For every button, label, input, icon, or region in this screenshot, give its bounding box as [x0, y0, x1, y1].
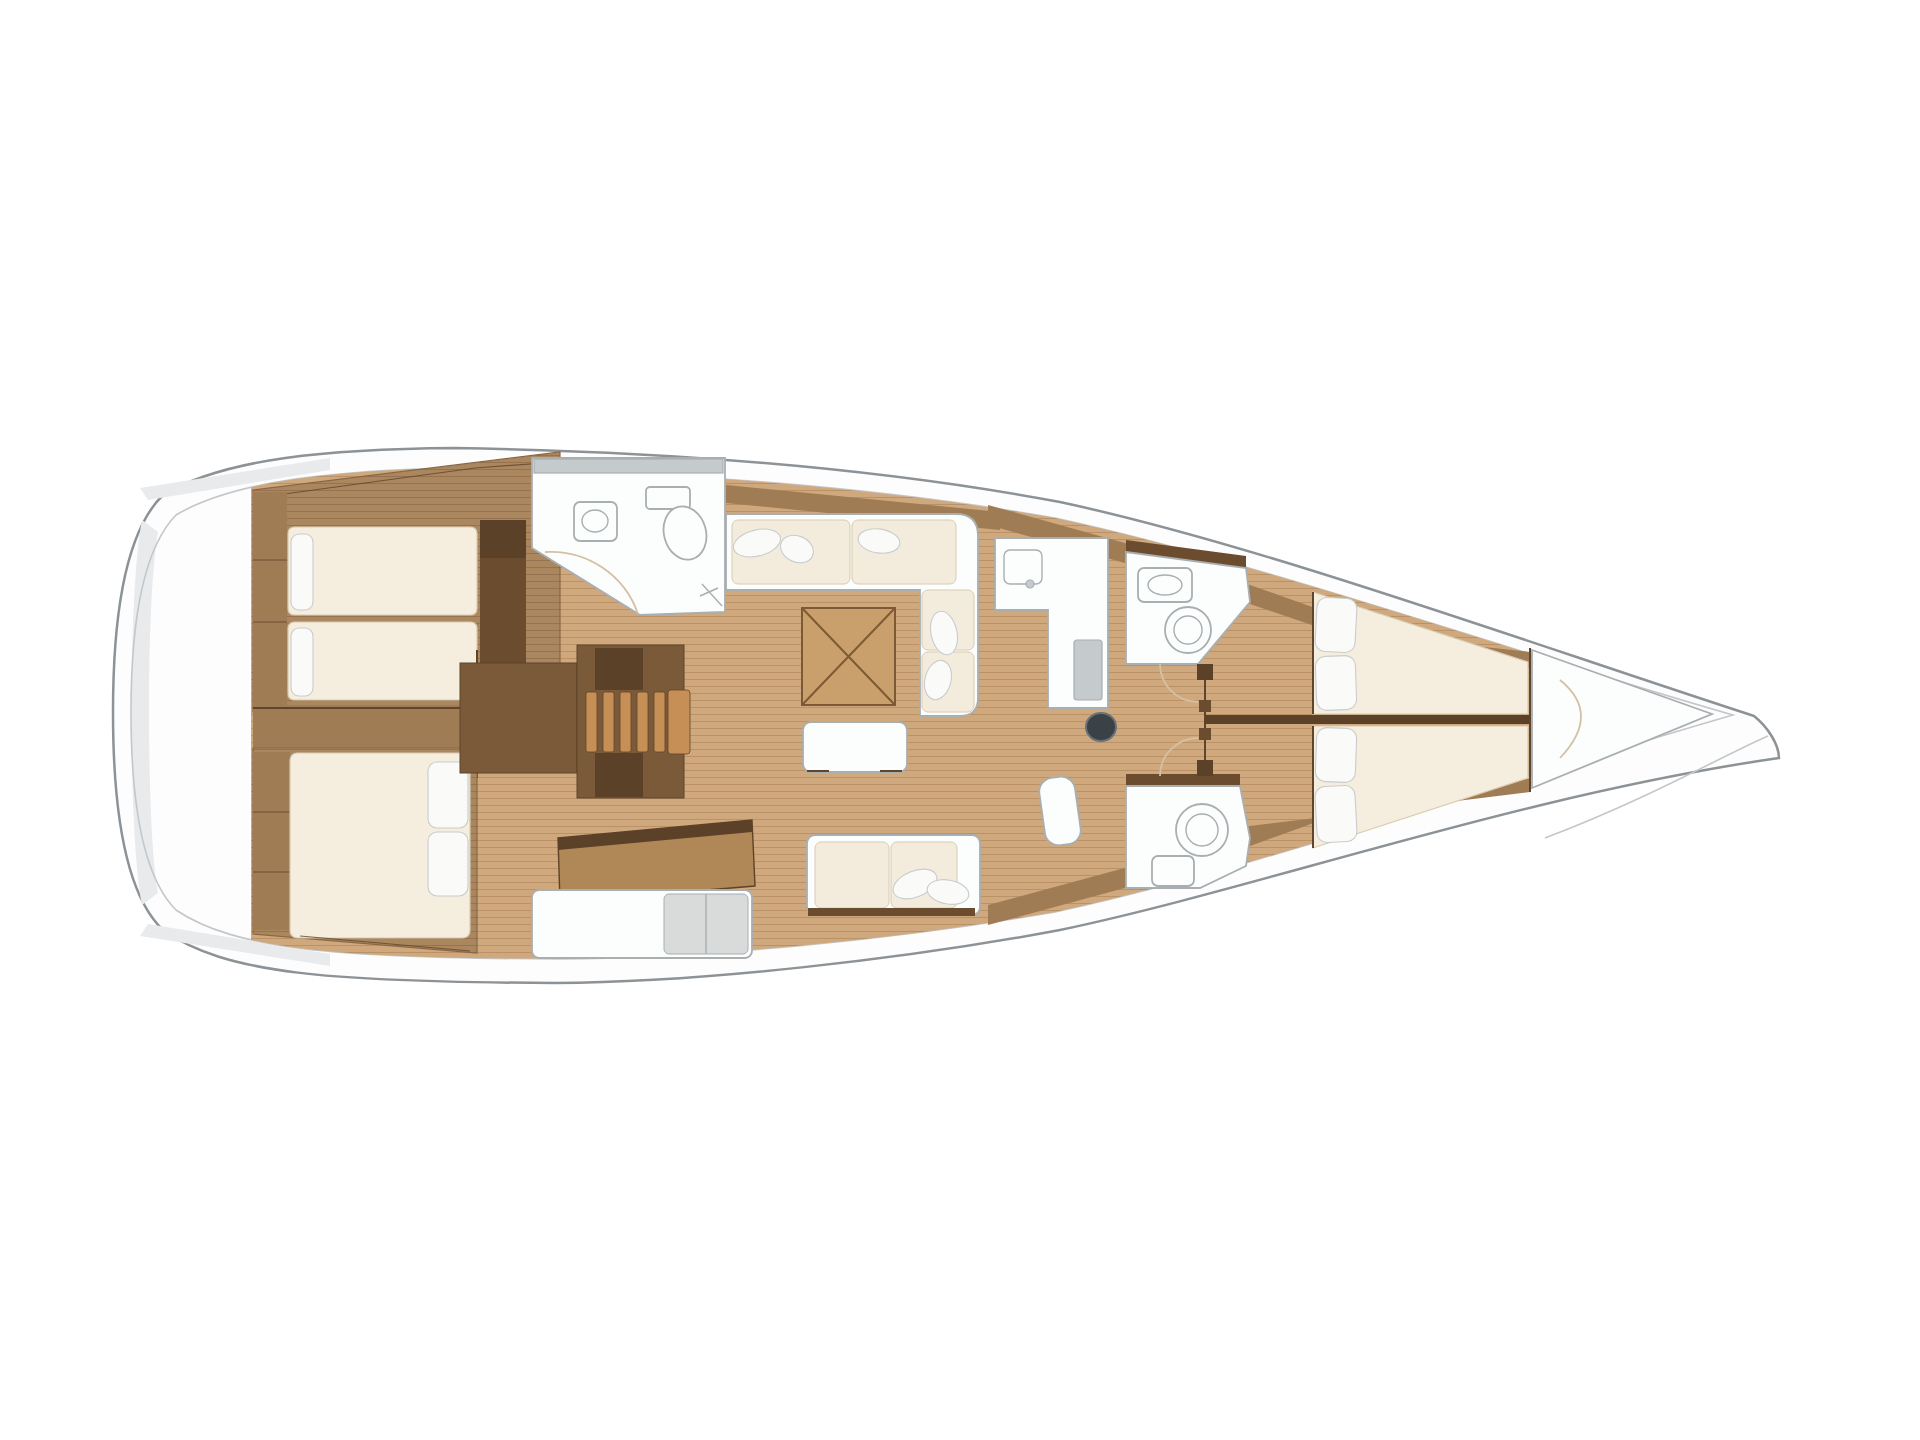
vberth-pillow-3	[1315, 727, 1357, 782]
forward-head-port-sink	[1138, 568, 1192, 602]
vberth-pillow-2	[1315, 655, 1357, 710]
floorplan-page	[0, 0, 1920, 1440]
aft-cabin-starboard-wardrobe	[253, 752, 290, 930]
vberth-center-divider	[1205, 715, 1530, 724]
vberth-pillow-4	[1315, 785, 1358, 843]
salon-bench	[803, 722, 907, 772]
mast	[1086, 713, 1116, 741]
forward-head-starboard-toilet	[1176, 804, 1228, 856]
stair-landing-tread	[668, 690, 690, 754]
stairs-rail-top	[595, 648, 643, 690]
aft-port-berth-1	[288, 527, 477, 615]
stair-tread-2	[603, 692, 614, 752]
forward-head-starboard-sink	[1152, 856, 1194, 886]
aft-head-cabinet	[534, 459, 723, 473]
aft-starboard-pillow-2	[428, 832, 468, 896]
stair-tread-1	[586, 692, 597, 752]
corridor-door-hinge-top	[1197, 664, 1213, 680]
forward-head-starboard-header	[1126, 774, 1240, 786]
aft-cabin-starboard	[253, 748, 477, 953]
stair-tread-3	[620, 692, 631, 752]
aft-port-pillow-1	[291, 534, 313, 610]
between-cabins-band	[253, 705, 477, 752]
forward-head-port-toilet	[1165, 607, 1211, 653]
aft-head-sink	[574, 502, 617, 541]
galley-faucet	[1026, 580, 1034, 588]
aft-cabin-port-wardrobe	[253, 492, 287, 710]
vberth-pillow-1	[1315, 597, 1358, 653]
yacht-floorplan-diagram	[0, 0, 1920, 1440]
chart-table-area	[532, 820, 755, 958]
corridor-door-hinge-bottom	[1197, 760, 1213, 776]
engine-box	[460, 663, 577, 773]
galley-stove	[1074, 640, 1102, 700]
corridor-door-latch-1	[1199, 700, 1211, 712]
settee-cushion-left	[815, 842, 889, 908]
aft-port-berth-2	[288, 622, 477, 700]
aft-cabin-port-vanity-top	[480, 520, 526, 558]
corridor-door-latch-2	[1199, 728, 1211, 740]
stairs-rail-bottom	[595, 753, 643, 797]
aft-port-pillow-2	[291, 628, 313, 696]
stair-tread-4	[637, 692, 648, 752]
stair-tread-5	[654, 692, 665, 752]
settee-plinth	[808, 908, 975, 916]
